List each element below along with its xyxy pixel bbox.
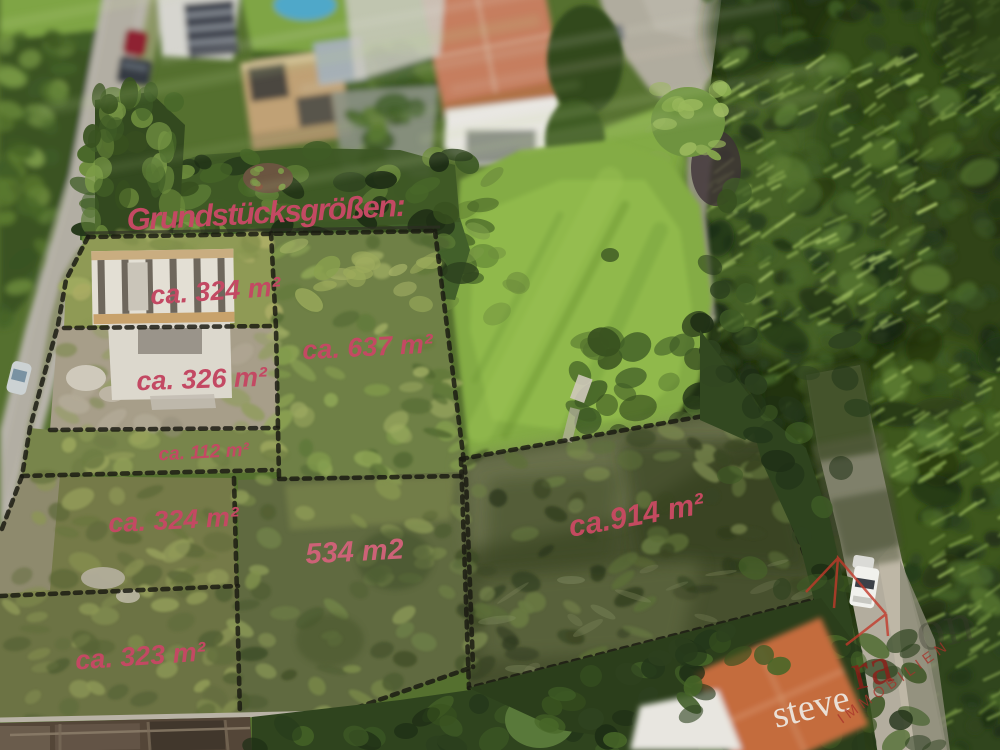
svg-text:534 m2: 534 m2	[305, 533, 405, 570]
svg-text:ca. 326 m²: ca. 326 m²	[136, 362, 269, 397]
